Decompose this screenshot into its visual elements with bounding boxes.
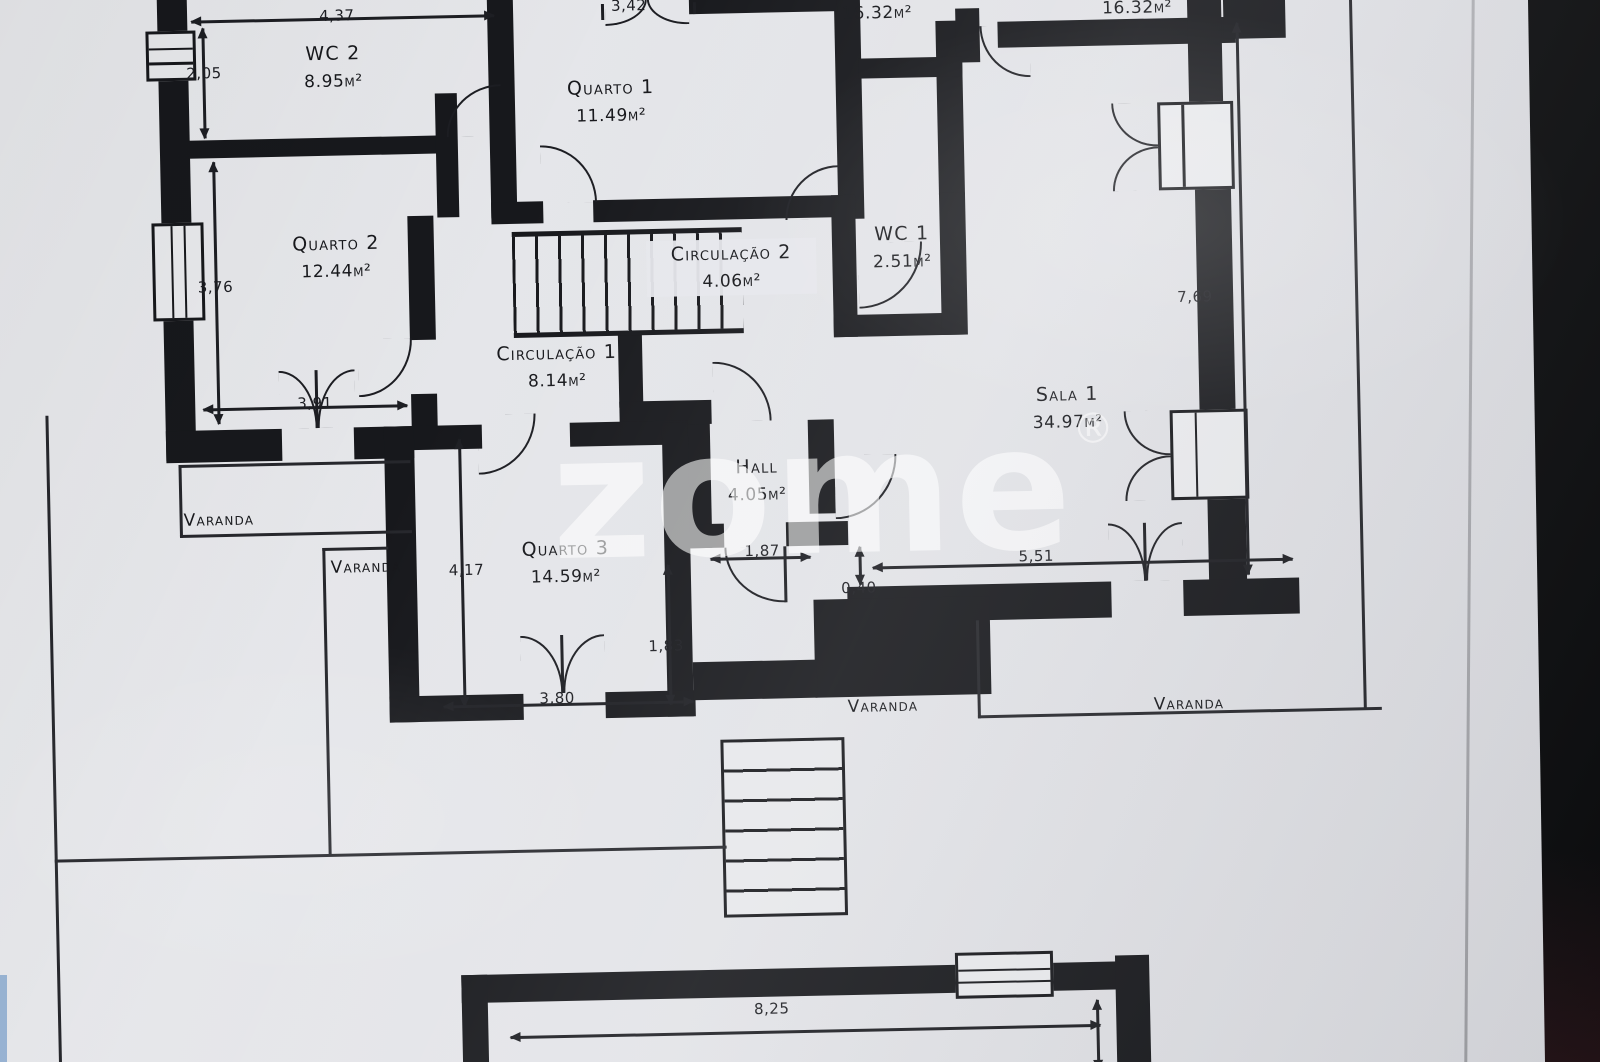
door-arc [979, 25, 1030, 78]
door-leaf [1143, 523, 1147, 581]
dimension-label: 8,25 [754, 999, 790, 1018]
wall [1207, 491, 1247, 588]
dimension-label: 3,91 [297, 394, 333, 413]
door-leaf [560, 635, 564, 693]
wall [1223, 0, 1286, 39]
room-area: 4.06m² [647, 267, 818, 297]
wall [166, 429, 283, 463]
dimension-line [511, 1024, 1101, 1039]
wall [1183, 578, 1300, 616]
room-area: 16.32m² [827, 0, 928, 28]
wall [461, 975, 489, 1062]
room-area-top-2: 16.32m² [1087, 0, 1188, 22]
room-label-wc2: WC 2 8.95m² [258, 38, 409, 97]
dimension-tick [693, 2, 696, 14]
balcony-label: Varanda [847, 696, 918, 717]
room-label-circulacao2: Circulação 2 4.06m² [646, 238, 817, 297]
balcony-label: Varanda [330, 556, 401, 577]
wall [693, 660, 818, 701]
wall [1187, 0, 1224, 110]
wall [389, 694, 524, 723]
balcony-line [322, 548, 331, 856]
room-area: 8.14m² [475, 367, 641, 397]
french-door-arc [520, 635, 563, 694]
door-arc [477, 414, 536, 475]
window-casement-arc [1125, 455, 1172, 501]
floor-plan-drawing: 4,37 3,42 2,05 3,76 3,91 4,17 1,87 0,40 … [0, 0, 1600, 1062]
balcony-line [322, 547, 388, 551]
wall [1115, 955, 1152, 1062]
registered-mark-icon: ® [1072, 403, 1117, 453]
window-casement-arc [1111, 102, 1158, 147]
room-name: WC 2 [258, 38, 409, 71]
watermark-text: zome [549, 387, 1075, 599]
window-symbol [1170, 409, 1250, 501]
window-casement-arc [1112, 146, 1159, 191]
room-area-top-1: 16.32m² [827, 0, 928, 28]
door-arc [784, 165, 839, 220]
exterior-stairs [720, 737, 848, 918]
balcony-label: Varanda [183, 509, 254, 530]
room-area: 16.32m² [1087, 0, 1188, 22]
dimension-label: 1,83 [648, 636, 684, 655]
dimension-line [201, 28, 206, 138]
wall [955, 8, 980, 62]
terrace-boundary-line [45, 416, 63, 1062]
dimension-label: 3,80 [539, 689, 575, 708]
room-name: WC 1 [842, 219, 963, 251]
zome-watermark: zome® [549, 401, 1119, 585]
dimension-label: 3,42 [611, 0, 647, 15]
room-area: 8.95m² [258, 68, 409, 97]
dimension-tick [601, 4, 604, 20]
balcony-line [180, 530, 412, 538]
ink-smudge [0, 975, 7, 1062]
room-label-wc1: WC 1 2.51m² [842, 219, 963, 277]
french-door-arc [1145, 522, 1183, 581]
dimension-label: 2,05 [186, 64, 222, 83]
room-label-quarto1: Quarto 1 11.49m² [530, 72, 691, 131]
window-symbol [151, 222, 205, 321]
room-name: Circulação 2 [646, 238, 817, 271]
wall [858, 57, 962, 79]
window-symbol [1157, 101, 1235, 191]
room-name: Quarto 2 [256, 228, 417, 261]
room-area: 2.51m² [842, 248, 963, 277]
floor-plan-photo: 4,37 3,42 2,05 3,76 3,91 4,17 1,87 0,40 … [0, 0, 1600, 1062]
dimension-label: 3,76 [198, 278, 234, 297]
room-name: Quarto 1 [530, 72, 691, 105]
room-area: 12.44m² [256, 257, 417, 287]
french-door-arc [647, 0, 690, 25]
terrace-boundary-line [1349, 0, 1367, 709]
wall [188, 135, 448, 158]
wall [689, 0, 837, 14]
balcony-line [178, 465, 183, 538]
wall [813, 596, 991, 698]
balcony-label: Varanda [1154, 693, 1225, 714]
wall [491, 201, 543, 224]
room-label-quarto2: Quarto 2 12.44m² [256, 228, 417, 287]
room-area: 11.49m² [531, 102, 692, 132]
dimension-label: 7,69 [1177, 287, 1213, 306]
dimension-line [1096, 1000, 1100, 1062]
dimension-label: 4,37 [319, 6, 355, 25]
dimension-label: 4,17 [449, 561, 485, 580]
terrace-boundary-line [55, 846, 727, 863]
french-door-arc [562, 634, 605, 693]
door-arc [358, 338, 413, 397]
window-symbol [955, 951, 1054, 999]
room-label-circulacao1: Circulação 1 8.14m² [474, 337, 640, 396]
room-name: Circulação 1 [474, 337, 640, 370]
wall [411, 394, 438, 429]
door-arc [540, 144, 597, 203]
